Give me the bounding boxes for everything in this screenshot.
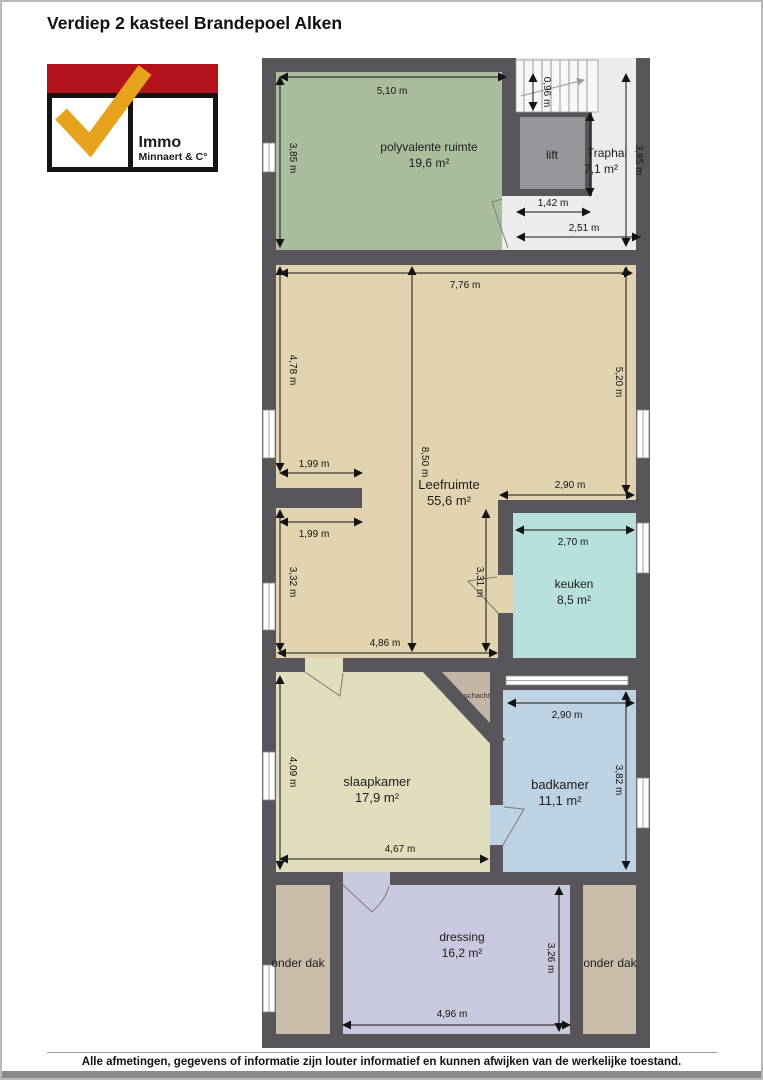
label-polyvalente-area: 19,6 m²	[409, 156, 450, 170]
wall-dressing-right	[570, 885, 583, 1034]
wall-top	[262, 58, 502, 72]
wall-slaap-bottom-left	[262, 872, 343, 885]
wall-leef-bottom-right	[343, 658, 650, 672]
staircase	[516, 60, 598, 112]
wall-top-section-bottom	[262, 250, 650, 265]
checkmark-icon	[47, 64, 218, 172]
label-traphal-area: 7,1 m²	[584, 162, 618, 176]
label-dressing-area: 16,2 m²	[442, 946, 483, 960]
dim-leef-bottom-width: 4,86 m	[370, 638, 401, 649]
stair-area	[516, 60, 598, 112]
dim-badkamer-height: 3,82 m	[613, 765, 624, 796]
door-gap-keuken	[498, 575, 513, 613]
footer-rule	[47, 1052, 717, 1053]
label-slaapkamer-name: slaapkamer	[343, 774, 411, 789]
label-onder-dak-left: onder dak	[271, 956, 325, 970]
dim-leef-to-keuken: 2,90 m	[555, 480, 586, 491]
dim-leef-left-lower: 3,32 m	[287, 567, 298, 598]
wall-slaap-bottom-right	[390, 872, 650, 885]
dim-traphal-height: 3,85 m	[633, 145, 644, 176]
dim-traphal-width: 2,51 m	[569, 223, 600, 234]
room-polyvalente	[276, 72, 502, 250]
wall-leef-bottom-left	[262, 658, 305, 672]
wall-slaap-bad-lower	[490, 845, 503, 872]
dim-stair-width: 0,96 m	[541, 77, 552, 108]
door-gap-badkamer	[490, 805, 503, 845]
wall-keuken-left-upper	[498, 513, 513, 575]
label-onder-dak-right: onder dak	[583, 956, 637, 970]
dim-leef-width: 7,76 m	[450, 280, 481, 291]
label-polyvalente-name: polyvalente ruimte	[380, 140, 478, 154]
label-keuken-name: keuken	[555, 577, 594, 591]
dim-nook-top: 1,99 m	[299, 459, 330, 470]
dim-leef-right: 5,20 m	[613, 367, 624, 398]
footer-disclaimer: Alle afmetingen, gegevens of informatie …	[0, 1056, 763, 1068]
wall-left	[262, 58, 276, 1048]
dim-leef-left-upper: 4,78 m	[287, 355, 298, 386]
dim-dressing-width: 4,96 m	[437, 1009, 468, 1020]
dim-poly-width: 5,10 m	[377, 86, 408, 97]
label-slaapkamer-area: 17,9 m²	[355, 790, 400, 805]
dim-leef-mid-lower: 3,31 m	[474, 567, 485, 598]
wall-bottom	[262, 1034, 650, 1048]
dim-leef-total-height: 8,50 m	[419, 447, 430, 478]
label-badkamer-area: 11,1 m²	[538, 793, 582, 808]
dim-dressing-height: 3,26 m	[545, 943, 556, 974]
label-schacht: schacht	[464, 691, 491, 700]
door-gap-dressing	[343, 872, 390, 885]
dim-poly-height: 3,85 m	[287, 143, 298, 174]
label-keuken-area: 8,5 m²	[557, 593, 591, 607]
dim-keuken-width: 2,70 m	[558, 537, 589, 548]
door-gap-traphal	[502, 196, 516, 250]
wall-keuken-top	[498, 500, 650, 513]
door-gap-slaapkamer	[305, 658, 343, 672]
dim-badkamer-width: 2,90 m	[552, 710, 583, 721]
label-dressing-name: dressing	[439, 930, 484, 944]
dim-slaapkamer-width: 4,67 m	[385, 844, 416, 855]
label-traphal-name: Traphal	[587, 146, 627, 160]
wall-dressing-left	[330, 885, 343, 1034]
bottom-bar	[2, 1071, 761, 1078]
wall-stub-leefruimte	[262, 488, 362, 508]
dim-slaapkamer-height: 4,09 m	[287, 757, 298, 788]
label-leefruimte-area: 55,6 m²	[427, 493, 472, 508]
dim-nook-bottom: 1,99 m	[299, 529, 330, 540]
label-lift: lift	[546, 148, 559, 162]
label-badkamer-name: badkamer	[531, 777, 589, 792]
agency-logo: Immo Minnaert & C°	[47, 64, 218, 172]
label-leefruimte-name: Leefruimte	[418, 477, 479, 492]
dim-lift-width: 1,42 m	[538, 198, 569, 209]
